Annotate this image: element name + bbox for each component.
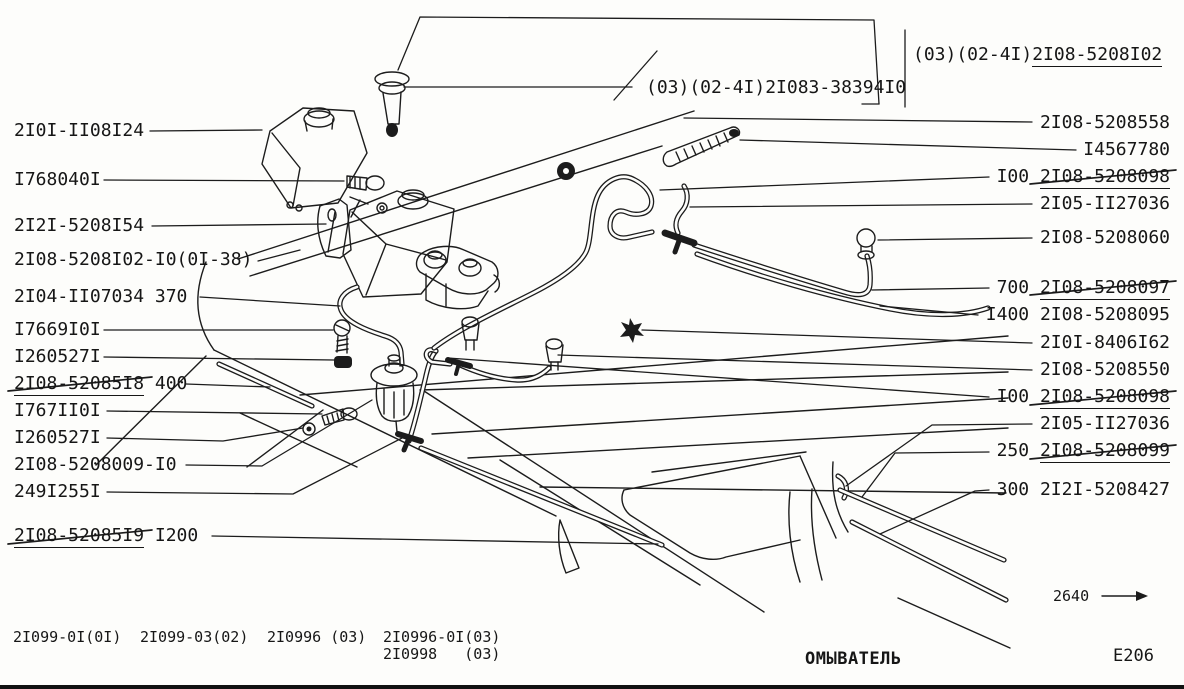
leader-line xyxy=(660,177,989,190)
part-callout-left-13: 2I08-52085I9 I200 xyxy=(14,527,198,545)
leader-line xyxy=(258,250,300,261)
part-callout-left-10: I260527I xyxy=(14,429,101,447)
part-callout-right-8: 2I0I-8406I62 xyxy=(1040,334,1170,352)
model-code-1: 2I099-0I(0I) xyxy=(13,629,121,645)
dimension-label: 2640 xyxy=(1053,587,1089,605)
leader-line xyxy=(642,330,1032,343)
part-callout-right-4: 2I05-II27036 xyxy=(1040,195,1170,213)
part-callout-right-5: 2I08-5208060 xyxy=(1040,229,1170,247)
leader-line xyxy=(200,297,340,306)
leader-line xyxy=(878,238,1032,240)
diagram-drawing xyxy=(0,0,1184,689)
part-callout-left-5: 2I04-II07034 370 xyxy=(14,288,187,306)
leader-line xyxy=(104,357,334,360)
leader-line xyxy=(740,140,1076,150)
filler-plug xyxy=(375,72,409,137)
star-rivet xyxy=(620,318,644,343)
leader-line xyxy=(872,288,989,290)
part-callout-right-2: I4567780 xyxy=(1083,141,1170,159)
tee-connector-right xyxy=(665,233,694,252)
part-callout-left-2: I768040I xyxy=(14,171,101,189)
part-callout-right-7: I400 2I08-5208095 xyxy=(986,306,1170,324)
hose-main-supply xyxy=(434,177,652,348)
leader-line xyxy=(862,452,989,497)
part-callout-right-12: 250 2I08-5208099 xyxy=(997,442,1170,460)
model-code-2: 2I099-03(02) xyxy=(140,629,248,645)
model-code-4: 2I0996-0I(03) xyxy=(383,629,500,645)
part-callout-left-4: 2I08-5208I02-I0(0I-38) xyxy=(14,251,252,269)
part-callout-right-1: 2I08-5208558 xyxy=(1040,114,1170,132)
leader-line xyxy=(107,411,322,414)
washer-reservoir-second xyxy=(343,190,454,297)
dimension-arrow xyxy=(1102,591,1148,601)
part-callout-left-3: 2I2I-5208I54 xyxy=(14,217,144,235)
washer-reservoir-main xyxy=(262,108,367,211)
screw-upper xyxy=(334,320,352,368)
part-callout-left-6: I7669I0I xyxy=(14,321,101,339)
part-callout-left-11: 2I08-5208009-I0 xyxy=(14,456,177,474)
scan-edge xyxy=(0,685,1184,689)
part-callout-top-1: (03)(02-4I)2I08-5208I02 xyxy=(913,46,1162,64)
grommet xyxy=(557,162,575,180)
part-callout-right-13: 300 2I2I-5208427 xyxy=(997,481,1170,499)
hose-1400 xyxy=(697,254,988,315)
part-callout-left-8: 2I08-52085I8 400 xyxy=(14,375,187,393)
model-code-3: 2I0996 (03) xyxy=(267,629,366,645)
part-callout-right-11: 2I05-II27036 xyxy=(1040,415,1170,433)
washer-pump xyxy=(371,355,417,432)
leader-line xyxy=(684,118,1032,122)
part-callout-left-9: I767II0I xyxy=(14,402,101,420)
part-callout-left-1: 2I0I-II08I24 xyxy=(14,122,144,140)
page-reference: E206 xyxy=(1113,646,1154,666)
diagram-caption: ОМЫВАТЕЛЬ xyxy=(805,649,902,669)
leader-line xyxy=(107,428,303,441)
check-valve xyxy=(663,127,739,166)
model-code-5: 2I0998 (03) xyxy=(383,646,500,662)
tee-connector-left xyxy=(398,360,470,450)
leader-line xyxy=(104,180,344,181)
leader-line xyxy=(150,130,262,131)
part-callout-right-10: I00 2I08-5208098 xyxy=(997,388,1170,406)
car-body-outline xyxy=(96,111,1010,648)
parts-diagram-page: (03)(02-4I)2I08-5208I02(03)(02-4I)2I083-… xyxy=(0,0,1184,689)
leader-line xyxy=(690,204,1032,207)
part-callout-right-3: I00 2I08-5208098 xyxy=(997,168,1170,186)
leader-line xyxy=(186,384,270,387)
part-callout-top-2: (03)(02-4I)2I083-38394I0 xyxy=(646,79,906,97)
screw-lower xyxy=(303,408,357,435)
leader-line xyxy=(212,536,658,544)
leader-line xyxy=(152,224,326,226)
part-callout-left-7: I260527I xyxy=(14,348,101,366)
part-callout-right-9: 2I08-5208550 xyxy=(1040,361,1170,379)
part-callout-left-12: 249I255I xyxy=(14,483,101,501)
part-callout-right-6: 700 2I08-5208097 xyxy=(997,279,1170,297)
